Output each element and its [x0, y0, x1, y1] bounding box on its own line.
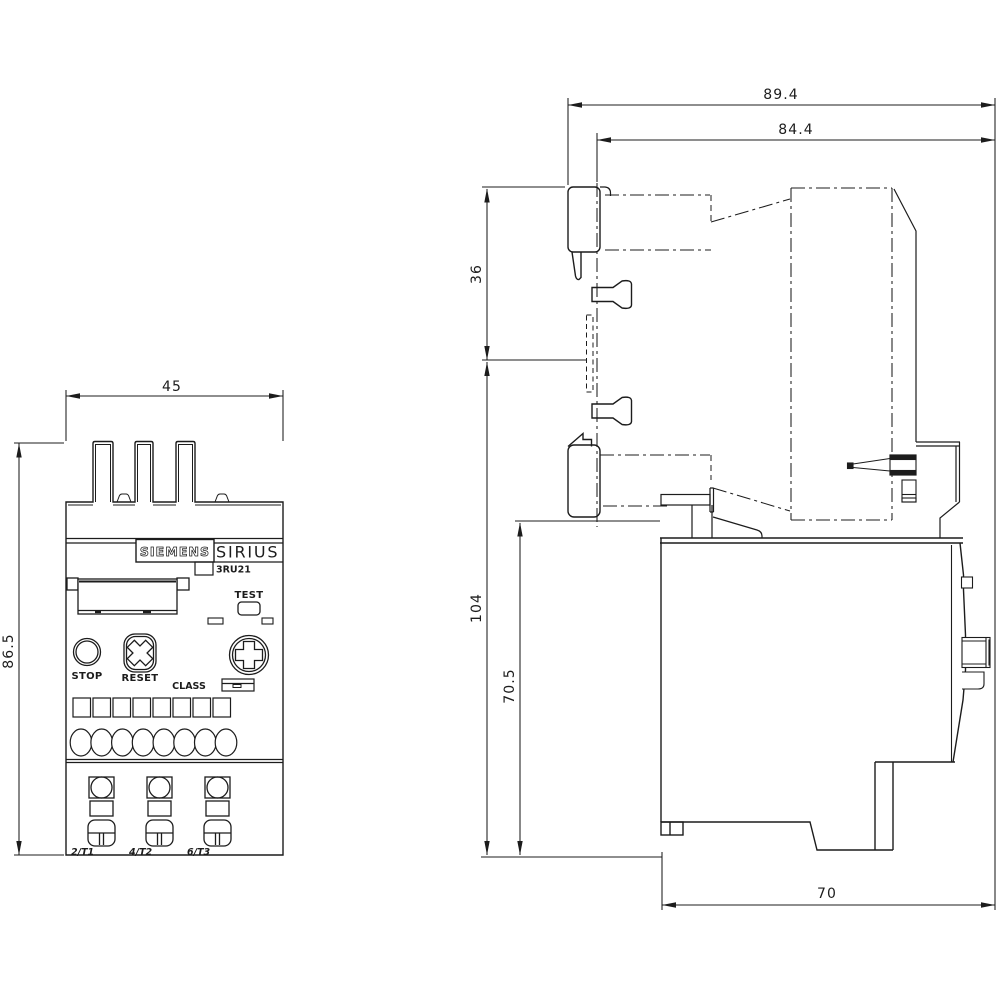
- drawing-svg: 45 86.5 89.4 84.4 36 104 70.5 70 SIEMENS…: [0, 0, 1000, 1000]
- dim-top-section-label: 36: [469, 264, 485, 284]
- side-view: [568, 183, 990, 850]
- stop-button[interactable]: [74, 639, 101, 666]
- terminal-label-2: 4/T2: [128, 847, 153, 858]
- model-label: 3RU21: [216, 565, 251, 576]
- guide-bump: [215, 494, 229, 502]
- stop-label: STOP: [71, 671, 102, 682]
- brand-label: SIEMENS: [140, 544, 210, 559]
- front-view: [66, 442, 283, 856]
- setting-circles: [70, 729, 237, 756]
- snap-peg: [592, 281, 632, 309]
- plug-frame: [894, 189, 960, 538]
- terminal-group: [88, 777, 231, 846]
- dim-total-width-label: 89.4: [763, 87, 799, 103]
- dim-body-width-label: 84.4: [778, 122, 814, 138]
- dim-total-height-label: 104: [469, 593, 485, 623]
- test-button[interactable]: [238, 602, 260, 615]
- dial-side-knob: [962, 638, 990, 690]
- dim-height-label: 86.5: [1, 633, 17, 669]
- upper-terminal-tab: [661, 488, 762, 538]
- front-dimensions: [14, 390, 283, 855]
- guide-bump: [117, 494, 131, 502]
- current-dial[interactable]: [230, 636, 269, 675]
- side-dimensions: [481, 98, 995, 910]
- setting-squares: [73, 698, 231, 717]
- dim-body-height-label: 70.5: [502, 668, 518, 704]
- series-label: SIRIUS: [216, 543, 279, 562]
- dimension-drawing: 45 86.5 89.4 84.4 36 104 70.5 70 SIEMENS…: [0, 0, 1000, 1000]
- din-hook-upper: [568, 187, 600, 252]
- terminal-label-3: 6/T3: [187, 847, 211, 858]
- class-indicator: [222, 679, 254, 691]
- reset-button[interactable]: [122, 634, 159, 672]
- dim-depth-label: 70: [817, 886, 837, 902]
- setting-window: [67, 578, 189, 614]
- dim-width-label: 45: [162, 379, 182, 395]
- din-hook-lower: [568, 445, 600, 517]
- snap-peg: [592, 397, 632, 425]
- reset-label: RESET: [122, 673, 159, 684]
- model-box: [195, 562, 213, 575]
- side-body: [660, 538, 990, 850]
- test-label: TEST: [235, 590, 264, 601]
- hook-claw-upper: [572, 252, 581, 280]
- connector-pin: [848, 455, 917, 502]
- terminal-label-1: 2/T1: [71, 847, 94, 858]
- class-label: CLASS: [172, 681, 206, 692]
- side-bump: [962, 577, 973, 588]
- contactor-phantom: [597, 183, 892, 527]
